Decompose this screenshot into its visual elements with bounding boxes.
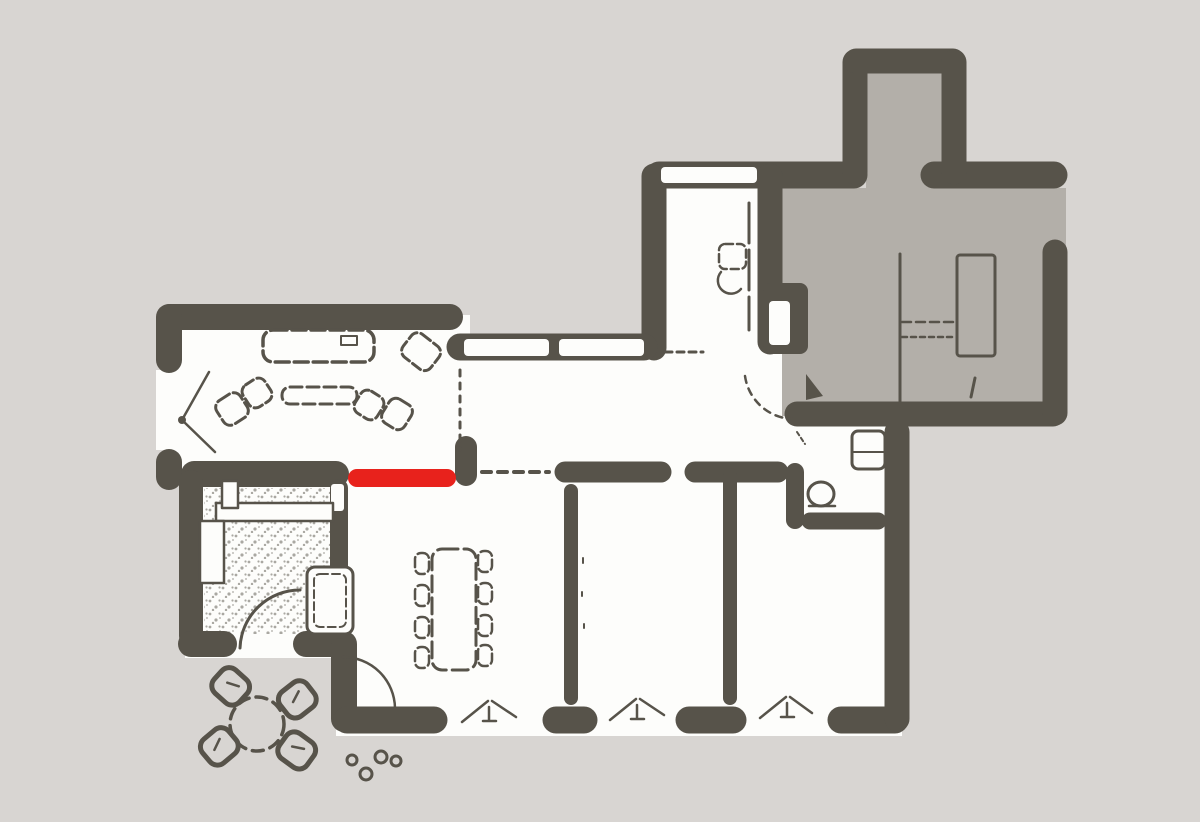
floor-balcony-door-opening [156,370,186,450]
floor-bedroom-1 [566,478,736,736]
floor-living-room [165,315,470,480]
window-slot-office [661,167,757,183]
kitchen-sink [222,481,238,508]
slot-niche [769,301,790,345]
bathroom-sink [852,431,885,469]
window-slot-band-1 [464,339,549,356]
kitchen-counter-left [200,521,224,583]
floor-plan-svg [0,0,1200,822]
window-slot-band-2 [559,339,644,356]
floor-hallway [448,345,804,480]
floor-dining-room [336,474,576,736]
floor-plan-stage [0,0,1200,822]
balcony-door-hinge [178,416,186,424]
floor-plan-layers [0,0,1200,822]
